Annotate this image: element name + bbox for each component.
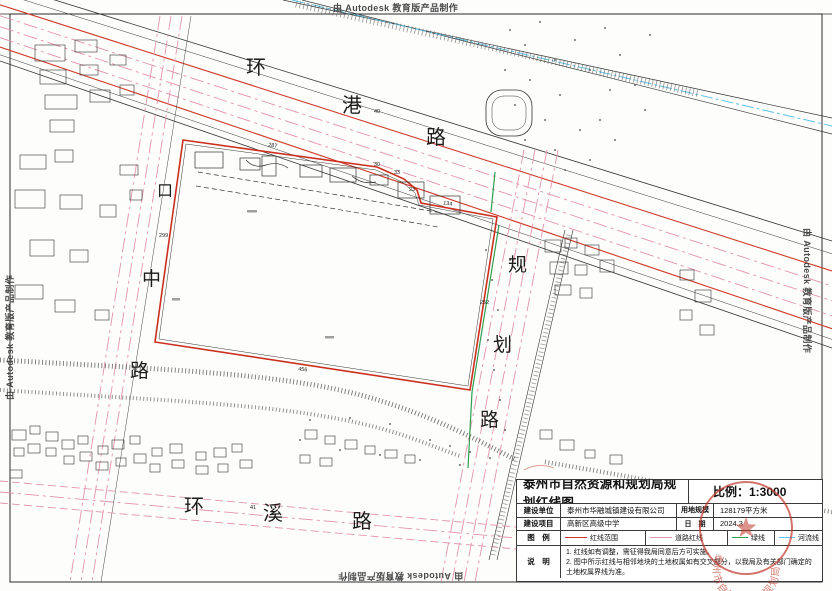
- buildings-village: [10, 426, 415, 478]
- seal-star: [736, 517, 757, 537]
- road-label-west-1: 口: [157, 184, 173, 200]
- legend-label: 图 例: [517, 531, 561, 545]
- seal-arc-text: 泰州市自然资源和规划局: [710, 552, 782, 591]
- dim-ne-edge: 134: [443, 201, 453, 208]
- road-label-huanxi-3: 路: [352, 512, 372, 532]
- field-unit-value: 泰州市华融城镇建设有限公司: [561, 504, 677, 517]
- pond: [486, 90, 532, 136]
- dim-jog-b: 33: [394, 171, 400, 177]
- field-project-value: 高新区高级中学: [561, 518, 677, 531]
- legend-item-redline: 红线范围: [561, 531, 646, 545]
- watermark-bottom: 由 Autodesk 教育版产品制作: [338, 570, 463, 583]
- dim-top-edge: 287: [268, 143, 278, 150]
- road-label-huanxi-2: 溪: [263, 504, 283, 524]
- field-project-label: 建设项目: [517, 518, 561, 531]
- parcel-redline: [155, 140, 497, 390]
- road-label-guihua-1: 规: [508, 256, 527, 275]
- road-label-guihua-2: 划: [493, 336, 512, 355]
- watermark-right: 由 Autodesk 教育版产品制作: [801, 228, 814, 353]
- buildings-east-of-road: [540, 238, 714, 464]
- canal-band: [283, 0, 832, 134]
- road-huangang-lines: [0, 0, 832, 348]
- buildings-top-left: [35, 40, 134, 132]
- dim-south-edge: 456: [298, 367, 308, 374]
- road-label-huanxi-1: 环: [184, 497, 204, 517]
- road-label-huangang-2: 港: [342, 96, 362, 116]
- official-seal: 泰州市自然资源和规划局: [690, 462, 820, 591]
- road-label-west-3: 路: [130, 362, 149, 381]
- notes-label: 说 明: [517, 546, 561, 578]
- tiny-label-smudges: [172, 210, 334, 339]
- buildings-left-mid: [15, 150, 142, 320]
- dim-road-width: 40: [374, 110, 380, 116]
- vegetation-dots: [299, 21, 651, 466]
- watermark-left: 由 Autodesk 教育版产品制作: [3, 275, 16, 400]
- field-unit-label: 建设单位: [517, 504, 561, 517]
- dim-jog-c: 23: [409, 188, 415, 194]
- dim-east-edge: 252: [480, 301, 489, 307]
- legend-text-redline: 红线范围: [590, 533, 618, 543]
- dim-west-edge: 299: [159, 234, 168, 240]
- road-label-huangang-1: 环: [246, 58, 266, 78]
- road-label-guihua-3: 路: [480, 411, 499, 430]
- planning-redline-drawing: 由 Autodesk 教育版产品制作 由 Autodesk 教育版产品制作 由 …: [0, 0, 832, 591]
- road-label-huangang-3: 路: [426, 128, 446, 148]
- river-line: [292, 0, 832, 126]
- road-huanxi-lines: [0, 481, 516, 549]
- legend-sample-roadline: [650, 537, 672, 538]
- road-label-west-2: 中: [142, 270, 161, 289]
- legend-sample-redline: [565, 537, 587, 538]
- dim-huanxi-width: 41: [250, 506, 256, 512]
- drawing-title: 泰州市自然资源和规划局规划红线图: [517, 480, 689, 503]
- seal-fragment: [524, 465, 554, 470]
- dim-jog-a: 30: [374, 163, 380, 169]
- embankment-hatch-north: [296, 4, 700, 94]
- watermark-top: 由 Autodesk 教育版产品制作: [333, 1, 458, 14]
